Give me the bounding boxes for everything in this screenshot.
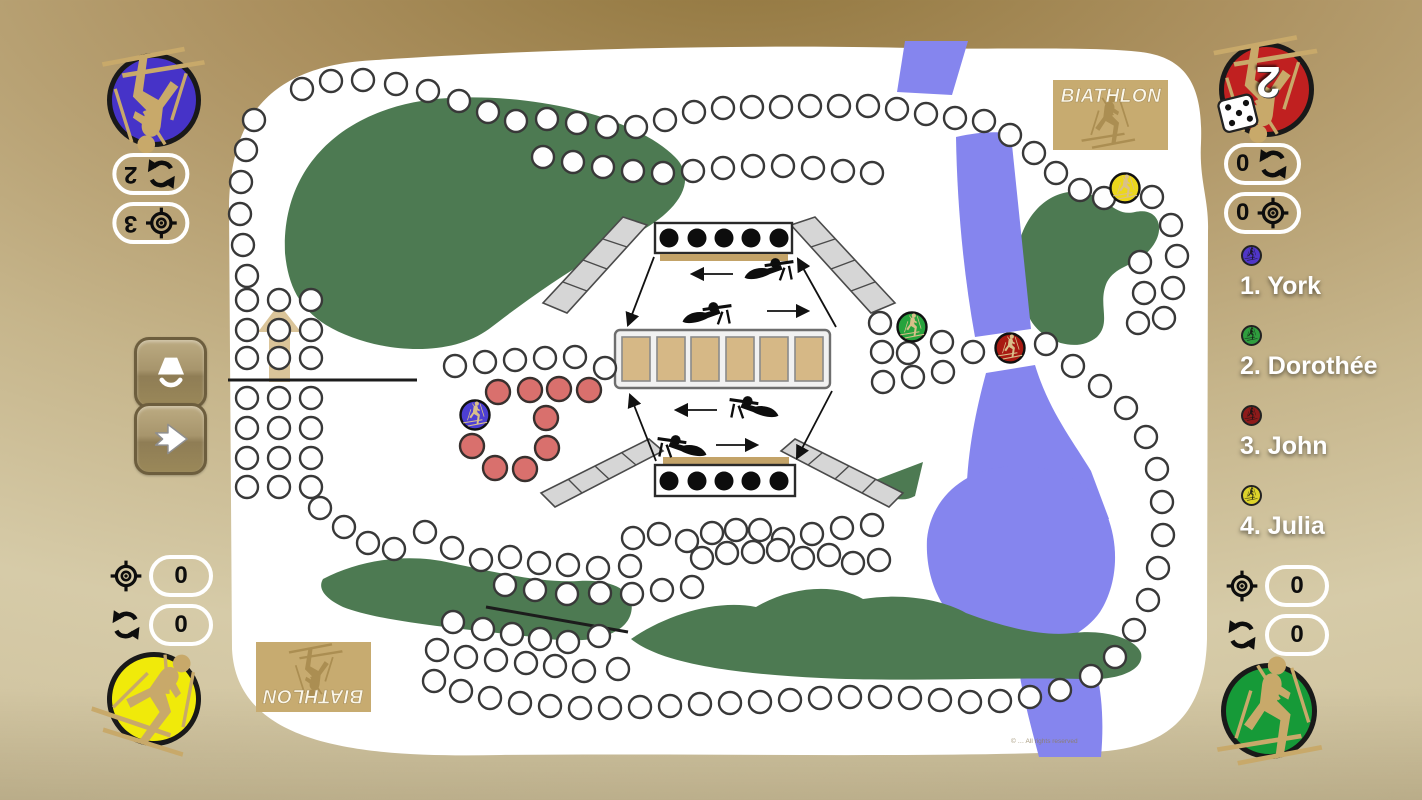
counter-pill: 0 xyxy=(1224,192,1301,234)
track-space xyxy=(1137,589,1159,611)
track-space xyxy=(701,522,723,544)
track-space xyxy=(536,108,558,130)
track-space xyxy=(799,95,821,117)
counter-pill: 3 xyxy=(112,202,189,244)
track-space xyxy=(596,116,618,138)
track-space xyxy=(871,341,893,363)
track-space xyxy=(417,80,439,102)
player-list-item: 2. Dorothée xyxy=(1240,352,1422,381)
track-space xyxy=(320,70,342,92)
app-root: { "app": { "logo_text": "BIATHLON", "cop… xyxy=(0,0,1422,800)
track-space xyxy=(509,692,531,714)
track-space xyxy=(629,696,651,718)
start-space xyxy=(268,387,290,409)
track-space xyxy=(770,96,792,118)
track-space xyxy=(1153,307,1175,329)
track-space xyxy=(902,366,924,388)
track-space xyxy=(659,695,681,717)
player-list-item: 3. John xyxy=(1240,432,1422,461)
svg-text:BIATHLON: BIATHLON xyxy=(262,685,364,706)
counter-row: 0 xyxy=(1226,565,1329,607)
counter-row: 0 xyxy=(1226,614,1329,656)
player-list-item: 1. York xyxy=(1240,272,1422,301)
track-space xyxy=(652,162,674,184)
track-space xyxy=(869,312,891,334)
track-space xyxy=(809,687,831,709)
player-medallion-yellow xyxy=(90,635,217,762)
track-space xyxy=(333,516,355,538)
track-space xyxy=(243,109,265,131)
start-space xyxy=(236,289,258,311)
player-list-item: 4. Julia xyxy=(1240,512,1422,541)
track-space xyxy=(534,347,556,369)
track-space xyxy=(291,78,313,100)
track-space xyxy=(569,697,591,719)
track-space xyxy=(681,576,703,598)
target-icon xyxy=(1226,570,1258,602)
track-space xyxy=(442,611,464,633)
track-space xyxy=(712,157,734,179)
track-space xyxy=(1062,355,1084,377)
game-board: BIATHLON BIATHLON © … All rights reserve… xyxy=(211,41,1211,757)
biathlete-icon xyxy=(79,624,229,774)
counter-pill: 0 xyxy=(1224,143,1301,185)
player-dot-york xyxy=(1241,245,1262,266)
start-space xyxy=(300,447,322,469)
player-token-julia[interactable] xyxy=(1111,174,1140,203)
counter-row: 0 xyxy=(1224,192,1301,234)
track-space xyxy=(455,646,477,668)
track-space xyxy=(719,692,741,714)
track-space xyxy=(944,107,966,129)
track-space xyxy=(989,690,1011,712)
start-space xyxy=(268,476,290,498)
biathlon-logo-top-right: BIATHLON xyxy=(1053,80,1168,150)
track-space xyxy=(235,139,257,161)
biathlete-icon xyxy=(1244,247,1258,261)
biathlete-icon xyxy=(99,45,210,156)
refresh-icon xyxy=(1226,619,1258,651)
penalty-space xyxy=(534,406,558,430)
start-space xyxy=(236,319,258,341)
start-space xyxy=(236,447,258,469)
player-dot-dorothee xyxy=(1241,325,1262,346)
track-space xyxy=(562,151,584,173)
track-space xyxy=(622,160,644,182)
penalty-space xyxy=(577,378,601,402)
track-space xyxy=(962,341,984,363)
track-space xyxy=(716,542,738,564)
track-space xyxy=(861,162,883,184)
top-right-counters: 0 0 xyxy=(1224,143,1301,234)
track-space xyxy=(899,687,921,709)
lamp-icon xyxy=(148,350,194,396)
track-space xyxy=(573,660,595,682)
track-space xyxy=(779,689,801,711)
track-space xyxy=(648,523,670,545)
penalty-space xyxy=(486,380,510,404)
counter-pill: 0 xyxy=(1265,614,1329,656)
track-space xyxy=(589,582,611,604)
track-space xyxy=(689,693,711,715)
dice-icon xyxy=(1216,90,1262,136)
track-space xyxy=(622,527,644,549)
biathlon-logo-bottom-left: BIATHLON xyxy=(256,642,371,712)
start-space xyxy=(300,347,322,369)
svg-text:BIATHLON: BIATHLON xyxy=(1061,86,1163,107)
track-space xyxy=(1023,142,1045,164)
counter-row: 0 xyxy=(110,555,213,597)
start-space xyxy=(300,319,322,341)
track-space xyxy=(742,155,764,177)
track-space xyxy=(886,98,908,120)
track-space xyxy=(539,695,561,717)
penalty-space xyxy=(483,456,507,480)
track-space xyxy=(931,331,953,353)
track-space xyxy=(857,95,879,117)
track-space xyxy=(691,547,713,569)
counter-value: 0 xyxy=(1290,574,1303,598)
track-space xyxy=(504,349,526,371)
track-space xyxy=(1019,686,1041,708)
track-space xyxy=(566,112,588,134)
track-space xyxy=(872,371,894,393)
track-space xyxy=(1141,186,1163,208)
track-space xyxy=(529,628,551,650)
track-space xyxy=(897,342,919,364)
track-space xyxy=(861,514,883,536)
track-space xyxy=(385,73,407,95)
track-space xyxy=(588,625,610,647)
track-space xyxy=(426,639,448,661)
start-space xyxy=(300,417,322,439)
biathlete-icon xyxy=(1212,654,1326,768)
track-space xyxy=(557,554,579,576)
track-space xyxy=(352,69,374,91)
track-space xyxy=(556,583,578,605)
target-bank-bottom xyxy=(655,457,795,496)
shooting-mats xyxy=(615,330,830,388)
counter-value: 3 xyxy=(124,211,137,235)
player-token-john[interactable] xyxy=(996,334,1025,363)
start-space xyxy=(268,417,290,439)
track-space xyxy=(423,670,445,692)
top-left-counters: 3 2 xyxy=(112,153,189,244)
track-space xyxy=(485,649,507,671)
track-space xyxy=(441,537,463,559)
arrow-right-icon xyxy=(148,416,194,462)
track-space xyxy=(528,552,550,574)
track-space xyxy=(772,155,794,177)
track-space xyxy=(229,203,251,225)
start-space xyxy=(300,289,322,311)
track-space xyxy=(1151,491,1173,513)
start-space xyxy=(300,476,322,498)
counter-value: 0 xyxy=(174,564,187,588)
track-space xyxy=(499,546,521,568)
counter-row: 2 xyxy=(112,153,189,195)
track-space xyxy=(742,541,764,563)
track-space xyxy=(501,623,523,645)
counter-row: 3 xyxy=(112,202,189,244)
track-space xyxy=(232,234,254,256)
track-space xyxy=(915,103,937,125)
track-space xyxy=(832,160,854,182)
track-space xyxy=(494,574,516,596)
track-space xyxy=(839,686,861,708)
track-space xyxy=(524,579,546,601)
track-space xyxy=(599,697,621,719)
track-space xyxy=(621,583,643,605)
target-icon xyxy=(1257,197,1289,229)
track-space xyxy=(479,687,501,709)
biathlete-icon xyxy=(1244,487,1258,501)
refresh-icon xyxy=(145,158,177,190)
track-space xyxy=(1104,646,1126,668)
player-medallion-green xyxy=(1221,663,1317,759)
track-space xyxy=(868,549,890,571)
track-space xyxy=(929,689,951,711)
track-space xyxy=(999,124,1021,146)
track-space xyxy=(1166,245,1188,267)
player-token-dorothee[interactable] xyxy=(898,313,927,342)
counter-pill: 0 xyxy=(1265,565,1329,607)
penalty-space xyxy=(547,377,571,401)
start-space xyxy=(300,387,322,409)
track-space xyxy=(1133,282,1155,304)
track-space xyxy=(1129,251,1151,273)
lamp-button[interactable] xyxy=(134,337,207,409)
track-space xyxy=(557,631,579,653)
track-space xyxy=(654,109,676,131)
counter-value: 2 xyxy=(124,162,137,186)
track-space xyxy=(818,544,840,566)
start-space xyxy=(236,347,258,369)
counter-row: 0 xyxy=(1224,143,1301,185)
track-space xyxy=(749,691,771,713)
counter-value: 0 xyxy=(1236,152,1249,176)
counter-value: 0 xyxy=(1236,201,1249,225)
track-space xyxy=(1035,333,1057,355)
track-space xyxy=(1123,619,1145,641)
biathlete-icon xyxy=(1244,327,1258,341)
track-space xyxy=(683,101,705,123)
start-space xyxy=(236,476,258,498)
track-space xyxy=(236,265,258,287)
start-space xyxy=(268,319,290,341)
track-space xyxy=(725,519,747,541)
track-space xyxy=(383,538,405,560)
penalty-space xyxy=(513,457,537,481)
refresh-icon xyxy=(1257,148,1289,180)
counter-value: 0 xyxy=(1290,623,1303,647)
track-space xyxy=(474,351,496,373)
track-space xyxy=(959,691,981,713)
end-turn-button[interactable] xyxy=(134,403,207,475)
track-space xyxy=(1115,397,1137,419)
track-space xyxy=(309,497,331,519)
track-space xyxy=(651,579,673,601)
track-space xyxy=(532,146,554,168)
track-space xyxy=(1080,665,1102,687)
track-space xyxy=(1147,557,1169,579)
start-space xyxy=(236,387,258,409)
track-space xyxy=(801,523,823,545)
track-space xyxy=(1049,679,1071,701)
track-space xyxy=(932,361,954,383)
start-space xyxy=(268,347,290,369)
counter-value: 0 xyxy=(174,613,187,637)
track-space xyxy=(1069,179,1091,201)
track-space xyxy=(444,355,466,377)
track-space xyxy=(472,618,494,640)
track-space xyxy=(619,555,641,577)
track-space xyxy=(682,160,704,182)
track-space xyxy=(973,110,995,132)
target-icon xyxy=(110,560,142,592)
track-space xyxy=(767,539,789,561)
bottom-right-counters: 0 0 xyxy=(1226,565,1329,656)
track-space xyxy=(448,90,470,112)
track-space xyxy=(564,346,586,368)
track-space xyxy=(869,686,891,708)
track-space xyxy=(828,95,850,117)
player-token-york[interactable] xyxy=(461,401,490,430)
track-space xyxy=(1160,214,1182,236)
track-space xyxy=(749,519,771,541)
start-space xyxy=(268,289,290,311)
track-space xyxy=(544,655,566,677)
start-space xyxy=(236,417,258,439)
track-space xyxy=(1135,426,1157,448)
track-space xyxy=(802,157,824,179)
track-space xyxy=(607,658,629,680)
track-space xyxy=(450,680,472,702)
target-icon xyxy=(145,207,177,239)
track-space xyxy=(831,517,853,539)
track-space xyxy=(1146,458,1168,480)
track-space xyxy=(515,652,537,674)
start-space xyxy=(268,447,290,469)
track-space xyxy=(594,357,616,379)
player-dot-john xyxy=(1241,405,1262,426)
track-space xyxy=(1045,162,1067,184)
player-medallion-blue xyxy=(107,53,201,147)
track-space xyxy=(1127,312,1149,334)
penalty-space xyxy=(518,378,542,402)
track-space xyxy=(592,156,614,178)
track-space xyxy=(357,532,379,554)
target-bank-top xyxy=(655,223,792,261)
track-space xyxy=(230,171,252,193)
track-space xyxy=(1162,277,1184,299)
track-space xyxy=(477,101,499,123)
track-space xyxy=(625,116,647,138)
track-space xyxy=(470,549,492,571)
counter-pill: 2 xyxy=(112,153,189,195)
board-copyright: © … All rights reserved xyxy=(1011,737,1078,745)
track-space xyxy=(712,97,734,119)
track-space xyxy=(792,547,814,569)
biathlete-icon xyxy=(1244,407,1258,421)
penalty-space xyxy=(460,434,484,458)
track-space xyxy=(741,96,763,118)
player-dot-julia xyxy=(1241,485,1262,506)
track-space xyxy=(1152,524,1174,546)
track-space xyxy=(842,552,864,574)
penalty-space xyxy=(535,436,559,460)
track-space xyxy=(414,521,436,543)
track-space xyxy=(1089,375,1111,397)
track-space xyxy=(587,557,609,579)
counter-pill: 0 xyxy=(149,555,213,597)
track-space xyxy=(505,110,527,132)
